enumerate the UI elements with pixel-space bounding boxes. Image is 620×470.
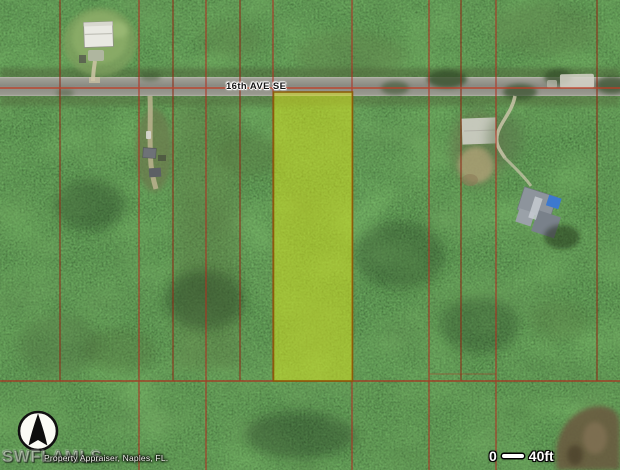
scale-bar-zero: 0 [489, 448, 497, 464]
compass-rose [19, 412, 57, 450]
aerial-imagery [0, 0, 620, 470]
roadside-clearing [560, 74, 594, 89]
aerial-parcel-map: 16th AVE SE SWFLAMLS Property Appraiser,… [0, 0, 620, 470]
scale-bar-distance: 40ft [529, 448, 554, 464]
street-label: 16th AVE SE [226, 81, 286, 92]
structure-left-1 [143, 148, 157, 159]
structure-left-2 [149, 168, 162, 178]
highlighted-parcel [274, 92, 353, 381]
scale-bar-segment [502, 454, 524, 458]
scale-bar: 0 40ft [489, 448, 554, 464]
attribution-text: Property Appraiser, Naples, FL. [44, 453, 168, 463]
